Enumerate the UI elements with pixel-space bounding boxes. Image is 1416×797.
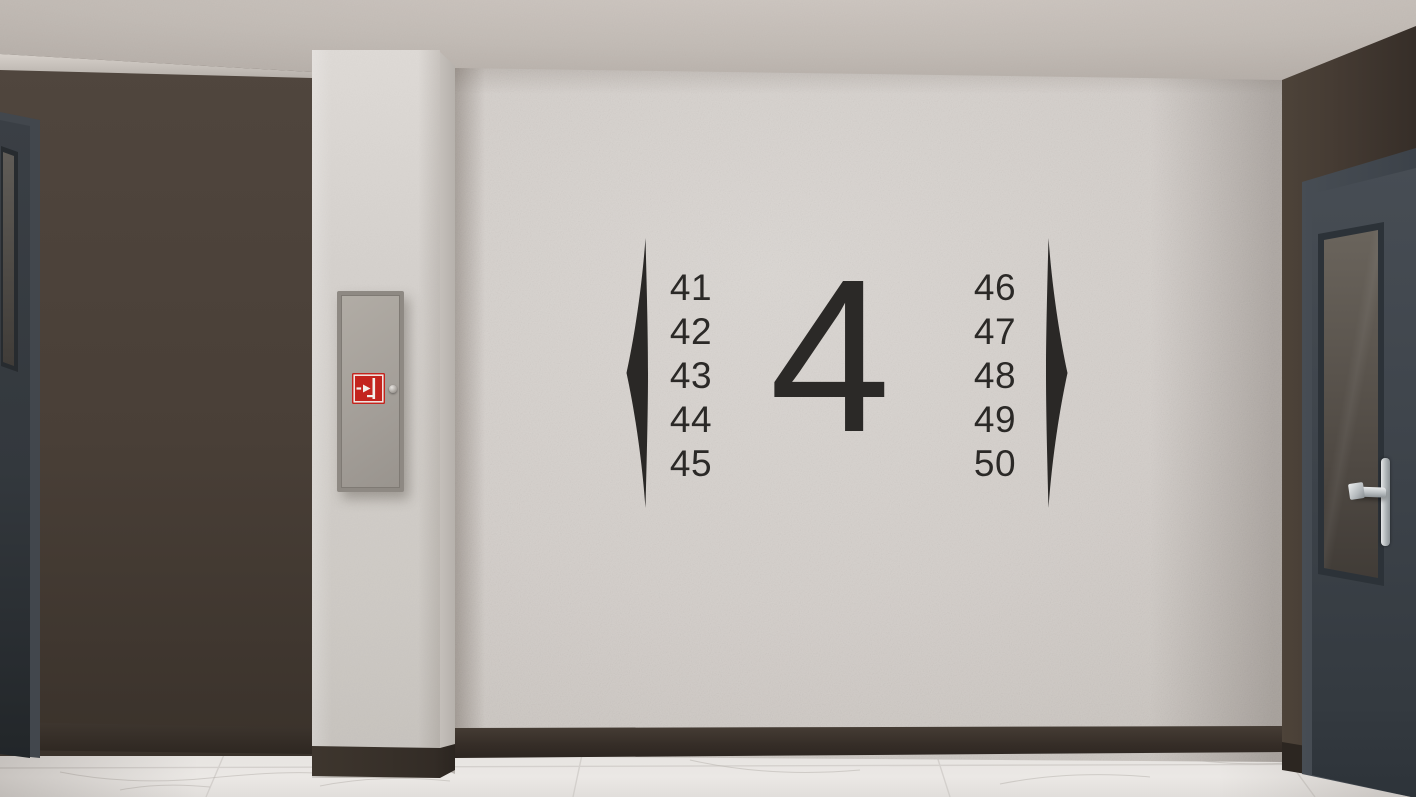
unit-number: 47 — [958, 310, 1032, 354]
unit-number: 45 — [654, 442, 728, 486]
floor-number: 4 — [762, 247, 898, 467]
unit-number: 48 — [958, 354, 1032, 398]
unit-number: 41 — [654, 266, 728, 310]
unit-number: 49 — [958, 398, 1032, 442]
blade-bracket-left-icon — [626, 238, 648, 508]
unit-number: 46 — [958, 266, 1032, 310]
door-handle-plate — [1381, 458, 1390, 546]
unit-number: 50 — [958, 442, 1032, 486]
column-side — [440, 52, 455, 774]
blade-bracket-right-icon — [1046, 238, 1068, 508]
fire-hose-sign-icon — [352, 373, 385, 404]
door-handle-grip — [1348, 482, 1365, 500]
unit-numbers-right: 46 47 48 49 50 — [958, 266, 1032, 486]
left-door-window — [3, 152, 14, 366]
unit-number: 43 — [654, 354, 728, 398]
fire-cabinet-lock-knob — [389, 385, 397, 393]
unit-number: 42 — [654, 310, 728, 354]
column-base — [312, 744, 455, 780]
unit-number: 44 — [654, 398, 728, 442]
hallway-scene: 41 42 43 44 45 4 46 47 48 49 50 — [0, 0, 1416, 797]
unit-numbers-left: 41 42 43 44 45 — [654, 266, 728, 486]
right-door-window — [1324, 230, 1378, 578]
left-wall — [0, 50, 312, 756]
